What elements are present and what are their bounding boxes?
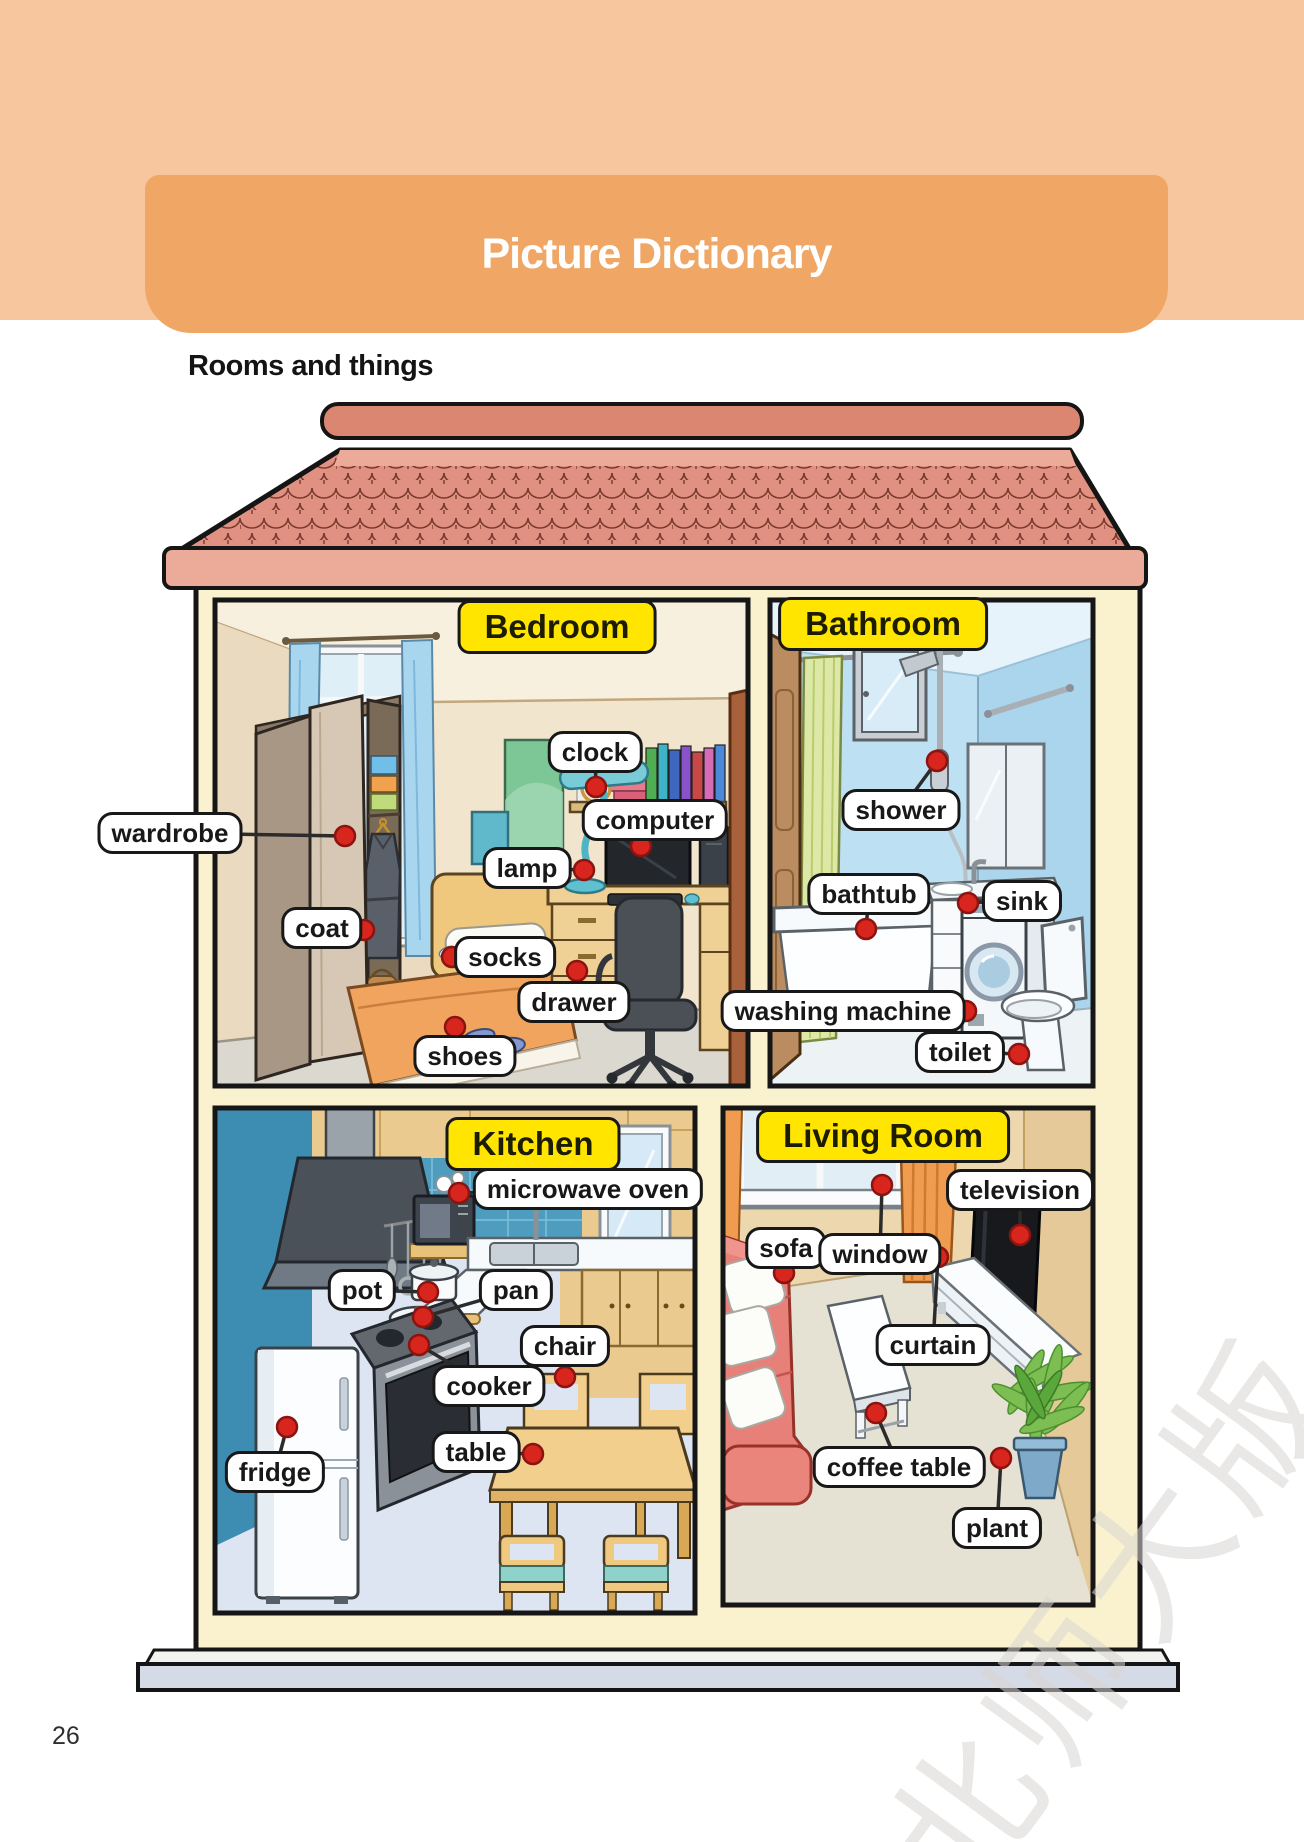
computer-dot (631, 836, 651, 856)
television-dot (1010, 1225, 1030, 1245)
washing-machine-dot (956, 1001, 976, 1021)
shower-dot (927, 751, 947, 771)
living-room-scene (712, 1108, 1095, 1605)
bathtub (774, 902, 940, 1010)
page-number: 26 (52, 1722, 80, 1751)
cooker-dot (409, 1335, 429, 1355)
fridge (256, 1348, 358, 1604)
roof (164, 404, 1146, 588)
coffee-table-dot (866, 1403, 886, 1423)
house-illustration (0, 0, 1304, 1842)
mirror-cabinet (968, 744, 1044, 868)
bedroom-scene (215, 600, 748, 1100)
lamp-dot (574, 860, 594, 880)
bathroom-door (770, 634, 800, 1080)
bedroom-door (730, 690, 748, 1086)
sofa-dot (774, 1263, 794, 1283)
bathroom-scene (770, 600, 1093, 1086)
mouse (685, 894, 699, 904)
sink-dot (958, 893, 978, 913)
toilet-dot (1009, 1044, 1029, 1064)
dining-chair-back-right (640, 1374, 695, 1434)
shoes-dot (445, 1017, 465, 1037)
window-dot (872, 1175, 892, 1195)
pan-dot (413, 1307, 433, 1327)
base-platform (138, 1650, 1178, 1690)
pot-dot (418, 1282, 438, 1302)
lower-cabinets (582, 1270, 695, 1346)
fridge-dot (277, 1417, 297, 1437)
socks-dot (442, 947, 462, 967)
chair-dot (555, 1367, 575, 1387)
coat (366, 834, 400, 958)
drawer-dot (567, 961, 587, 981)
coat-dot (354, 920, 374, 940)
wardrobe-dot (335, 826, 355, 846)
table-dot (523, 1444, 543, 1464)
textbook-page: Picture Dictionary Rooms and things (0, 0, 1304, 1842)
curtain-dot (928, 1247, 948, 1267)
clock-dot (586, 777, 606, 797)
microwave-oven-dot (449, 1183, 469, 1203)
bathtub-dot (856, 919, 876, 939)
plant-dot (991, 1448, 1011, 1468)
